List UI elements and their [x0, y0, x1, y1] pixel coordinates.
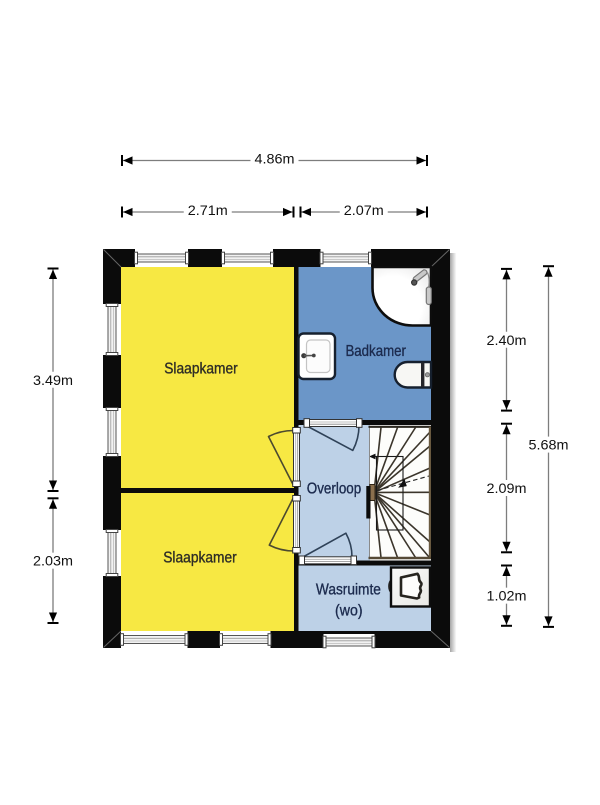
svg-text:1.02m: 1.02m: [487, 588, 527, 604]
svg-text:2.07m: 2.07m: [344, 202, 384, 218]
svg-text:3.49m: 3.49m: [33, 372, 73, 388]
svg-text:Badkamer: Badkamer: [345, 343, 406, 360]
svg-text:Slaapkamer: Slaapkamer: [163, 549, 237, 566]
svg-text:2.09m: 2.09m: [487, 480, 527, 496]
svg-text:Overloop: Overloop: [307, 481, 362, 498]
svg-text:Slaapkamer: Slaapkamer: [164, 361, 238, 378]
svg-text:4.86m: 4.86m: [255, 151, 295, 167]
svg-text:Wasruimte: Wasruimte: [316, 581, 381, 598]
svg-text:(wo): (wo): [335, 602, 363, 619]
svg-text:2.40m: 2.40m: [487, 332, 527, 348]
svg-text:2.03m: 2.03m: [33, 553, 73, 569]
svg-text:2.71m: 2.71m: [188, 202, 228, 218]
svg-text:5.68m: 5.68m: [529, 437, 569, 453]
